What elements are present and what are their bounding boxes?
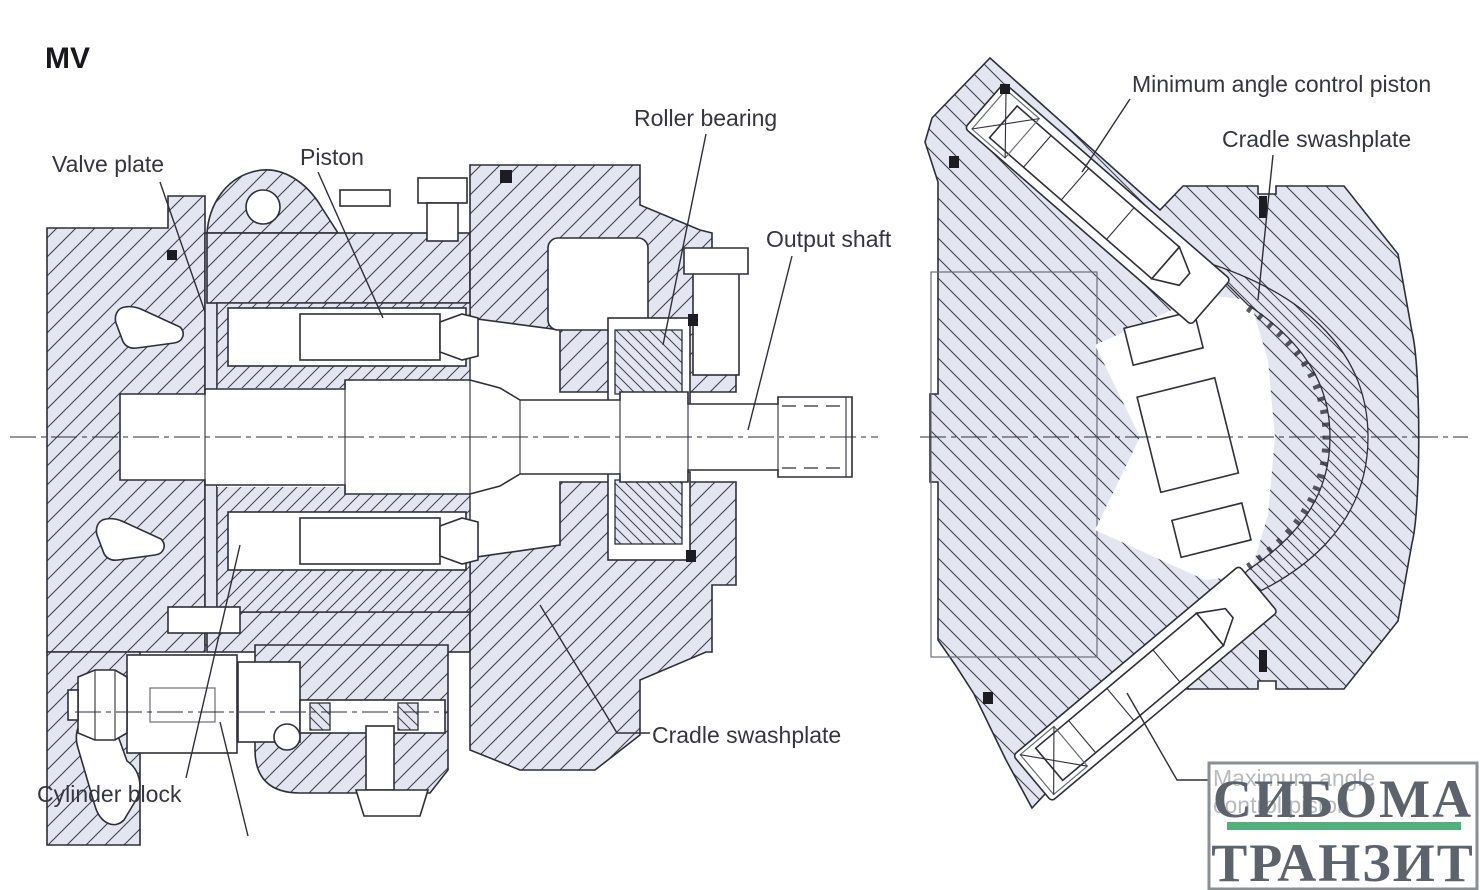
valve-plunger	[366, 726, 394, 790]
valve-ball-pin	[274, 724, 300, 750]
label-cradle-swashplate-right: Cradle swashplate	[1222, 126, 1411, 152]
seal-dot-6	[1000, 84, 1010, 94]
label-cylinder-block: Cylinder block	[37, 781, 182, 807]
valve-hex-fitting	[78, 670, 127, 740]
seal-dot-5	[949, 156, 959, 168]
roller-bearing-bottom	[615, 480, 682, 544]
top-plug-right-cap	[418, 178, 467, 203]
seal-dot-2	[167, 250, 177, 260]
top-plug-left	[340, 190, 390, 206]
label-minimum-angle-piston: Minimum angle control piston	[1132, 71, 1431, 97]
seal-dot-4	[686, 550, 696, 562]
label-output-shaft: Output shaft	[766, 226, 892, 252]
right-cross-section-drawing	[920, 58, 1468, 808]
watermark-line1: СИБОМА	[1213, 769, 1473, 829]
spool-land-left	[310, 703, 330, 730]
label-cradle-swashplate-left: Cradle swashplate	[652, 722, 841, 748]
ear-bolt-hole	[246, 190, 280, 224]
watermark-line2: ТРАНЗИТ	[1211, 833, 1475, 890]
seal-dot-1	[500, 170, 512, 183]
piston-top	[300, 314, 440, 360]
top-plug-right-stem	[427, 203, 458, 241]
spool-land-right	[398, 703, 418, 730]
seal-dot-9	[983, 692, 993, 704]
label-valve-plate: Valve plate	[52, 151, 164, 177]
seal-dot-3	[688, 314, 698, 326]
hex-fitting-cap	[68, 690, 78, 720]
piston-shoe-bottom	[440, 518, 478, 564]
spring-cavity	[548, 238, 648, 330]
watermark-stamp: СИБОМА ТРАНЗИТ	[1209, 763, 1477, 890]
solenoid-body	[127, 655, 237, 753]
seal-dot-7	[1259, 196, 1267, 218]
piston-bottom	[300, 518, 440, 564]
pump-cross-section-page: MV Valve plate Piston Roller bearing Out…	[0, 0, 1480, 890]
valve-hex-nut	[356, 790, 428, 816]
bolt-head	[684, 248, 748, 274]
label-roller-bearing: Roller bearing	[634, 105, 777, 131]
housing-top-beam	[207, 233, 470, 303]
bleed-fitting	[168, 607, 240, 633]
roller-bearing-top	[615, 330, 682, 394]
label-piston: Piston	[300, 144, 364, 170]
seal-dot-8	[1259, 650, 1267, 672]
piston-shoe-top	[440, 314, 478, 360]
figure-title: MV	[45, 42, 90, 75]
bearing-retainer-bolt	[693, 260, 739, 375]
pump-cross-section-figure: MV Valve plate Piston Roller bearing Out…	[0, 0, 1480, 890]
